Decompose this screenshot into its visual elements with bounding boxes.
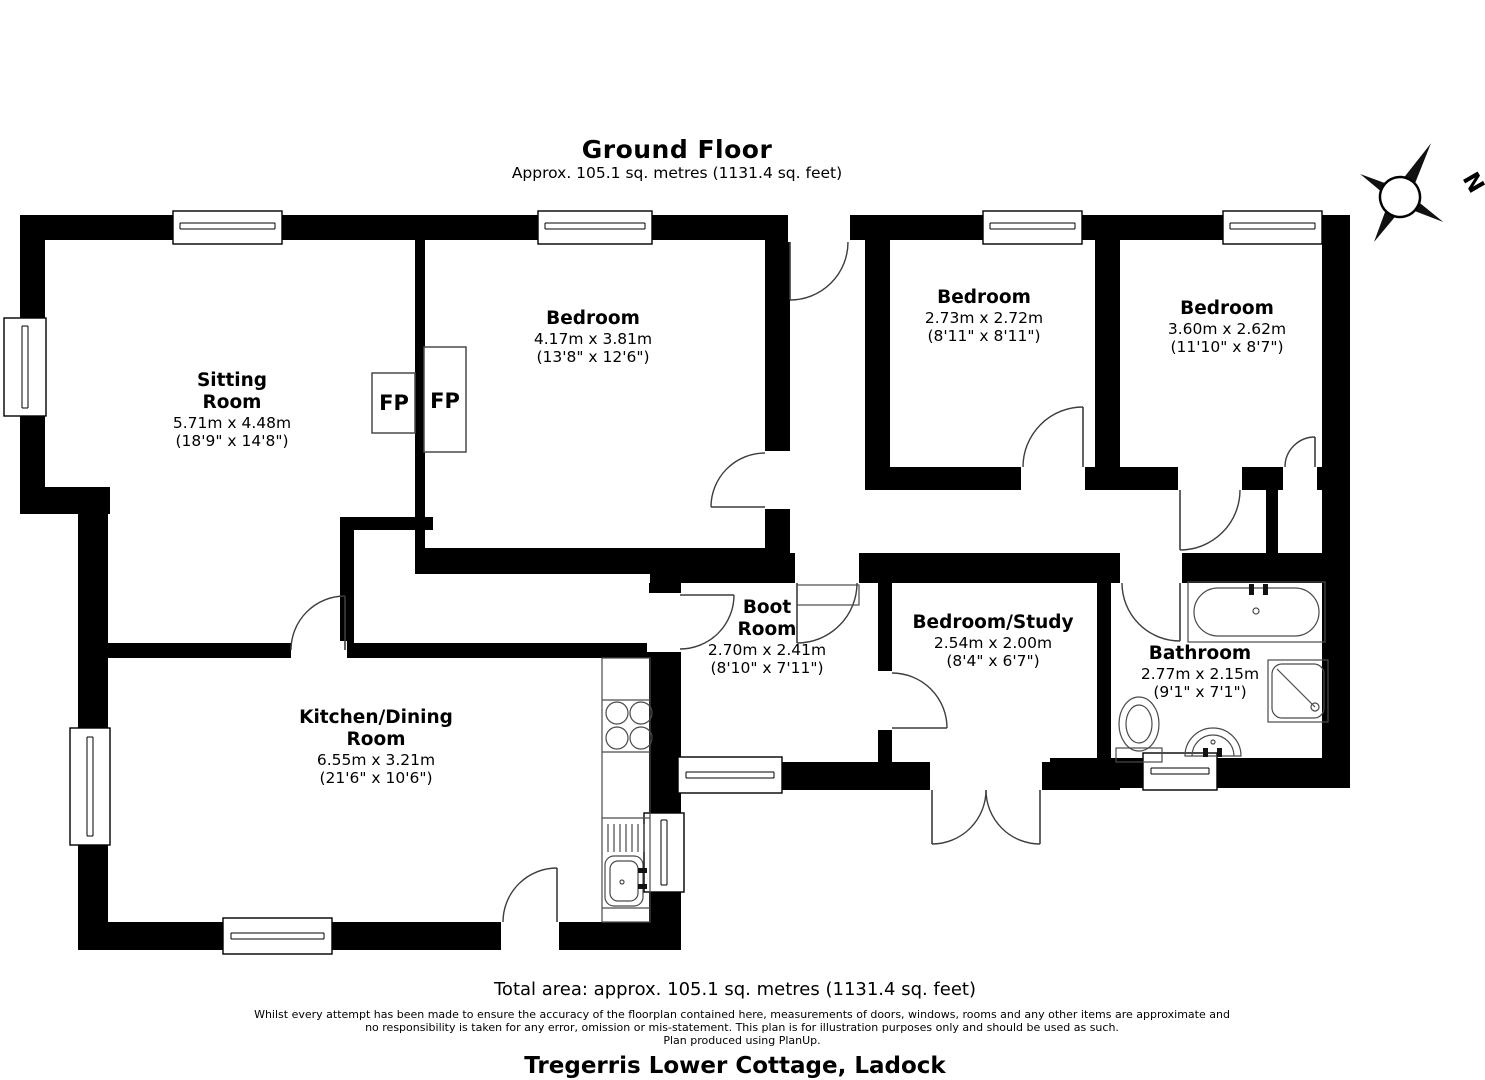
room-name: Bedroom	[1168, 298, 1286, 320]
toilet-icon	[1116, 697, 1162, 762]
compass-icon: N	[1334, 120, 1485, 267]
room-size-metric: 2.54m x 2.00m	[912, 634, 1073, 652]
window-bedroom1-north	[538, 211, 652, 244]
front-door	[790, 242, 848, 300]
floorplan-page: N Ground Floor Approx. 105.1 sq. metres …	[0, 0, 1485, 1080]
total-area-text: Total area: approx. 105.1 sq. metres (11…	[494, 979, 976, 1000]
room-name: Bedroom	[925, 287, 1043, 309]
fireplace-left-label: FP	[379, 391, 409, 415]
room-size-imperial: (11'10" x 8'7")	[1168, 338, 1286, 356]
page-title: Ground Floor	[582, 135, 773, 164]
disclaimer-line-1: Whilst every attempt has been made to en…	[254, 1008, 1230, 1022]
fireplace-right-label: FP	[430, 389, 460, 413]
room-label-bedroom-study: Bedroom/Study 2.54m x 2.00m (8'4" x 6'7"…	[912, 612, 1073, 670]
room-name: Bedroom/Study	[912, 612, 1073, 634]
room-size-imperial: (18'9" x 14'8")	[173, 432, 291, 450]
room-size-metric: 6.55m x 3.21m	[299, 751, 453, 769]
compass-north-label: N	[1457, 168, 1485, 198]
page-subtitle: Approx. 105.1 sq. metres (1131.4 sq. fee…	[512, 164, 842, 182]
window-kitchen-west	[70, 728, 110, 845]
window-sitting-north	[173, 211, 282, 244]
room-name: Kitchen/Dining Room	[299, 707, 453, 751]
room-size-metric: 2.77m x 2.15m	[1141, 665, 1259, 683]
bedroom3-door	[1180, 490, 1240, 550]
hob-icon	[606, 702, 652, 749]
bedroom2-door	[1023, 407, 1083, 467]
window-bedroom3-north	[1223, 211, 1322, 244]
room-size-metric: 4.17m x 3.81m	[534, 330, 652, 348]
bath-icon	[1188, 582, 1325, 642]
window-sitting-west	[4, 318, 46, 416]
fixtures	[372, 347, 1328, 922]
room-name: Bathroom	[1141, 643, 1259, 665]
disclaimer-line-2: no responsibility is taken for any error…	[365, 1021, 1119, 1035]
room-size-metric: 5.71m x 4.48m	[173, 414, 291, 432]
room-size-imperial: (13'8" x 12'6")	[534, 348, 652, 366]
property-title: Tregerris Lower Cottage, Ladock	[524, 1053, 945, 1079]
door-openings	[291, 213, 1317, 952]
room-name: Bedroom	[534, 308, 652, 330]
window-kitchen-south	[223, 918, 332, 954]
room-label-bathroom: Bathroom 2.77m x 2.15m (9'1" x 7'1")	[1141, 643, 1259, 701]
study-door	[892, 673, 947, 728]
bedroom1-door	[711, 453, 765, 507]
bathroom-door	[1122, 583, 1180, 641]
shower-icon	[1268, 660, 1328, 722]
room-size-metric: 2.73m x 2.72m	[925, 309, 1043, 327]
room-size-imperial: (21'6" x 10'6")	[299, 769, 453, 787]
room-label-boot-room: Boot Room 2.70m x 2.41m (8'10" x 7'11")	[708, 597, 826, 677]
room-name: Sitting Room	[173, 370, 291, 414]
window-boot-south	[678, 757, 782, 793]
room-size-imperial: (8'10" x 7'11")	[708, 659, 826, 677]
room-label-bedroom-1: Bedroom 4.17m x 3.81m (13'8" x 12'6")	[534, 308, 652, 366]
disclaimer-line-3: Plan produced using PlanUp.	[663, 1034, 820, 1048]
french-doors	[932, 790, 1040, 844]
room-size-imperial: (8'4" x 6'7")	[912, 652, 1073, 670]
cupboard-door	[1285, 437, 1315, 467]
room-size-imperial: (9'1" x 7'1")	[1141, 683, 1259, 701]
window-bathroom-south	[1143, 753, 1217, 790]
kitchen-south-door	[503, 868, 557, 922]
room-size-imperial: (8'11" x 8'11")	[925, 327, 1043, 345]
sink-icon	[605, 824, 647, 906]
window-bedroom2-north	[983, 211, 1082, 244]
room-label-bedroom-3: Bedroom 3.60m x 2.62m (11'10" x 8'7")	[1168, 298, 1286, 356]
room-size-metric: 3.60m x 2.62m	[1168, 320, 1286, 338]
room-label-bedroom-2: Bedroom 2.73m x 2.72m (8'11" x 8'11")	[925, 287, 1043, 345]
room-label-sitting-room: Sitting Room 5.71m x 4.48m (18'9" x 14'8…	[173, 370, 291, 450]
room-size-metric: 2.70m x 2.41m	[708, 641, 826, 659]
room-name: Boot Room	[708, 597, 826, 641]
room-label-kitchen-dining: Kitchen/Dining Room 6.55m x 3.21m (21'6"…	[299, 707, 453, 787]
